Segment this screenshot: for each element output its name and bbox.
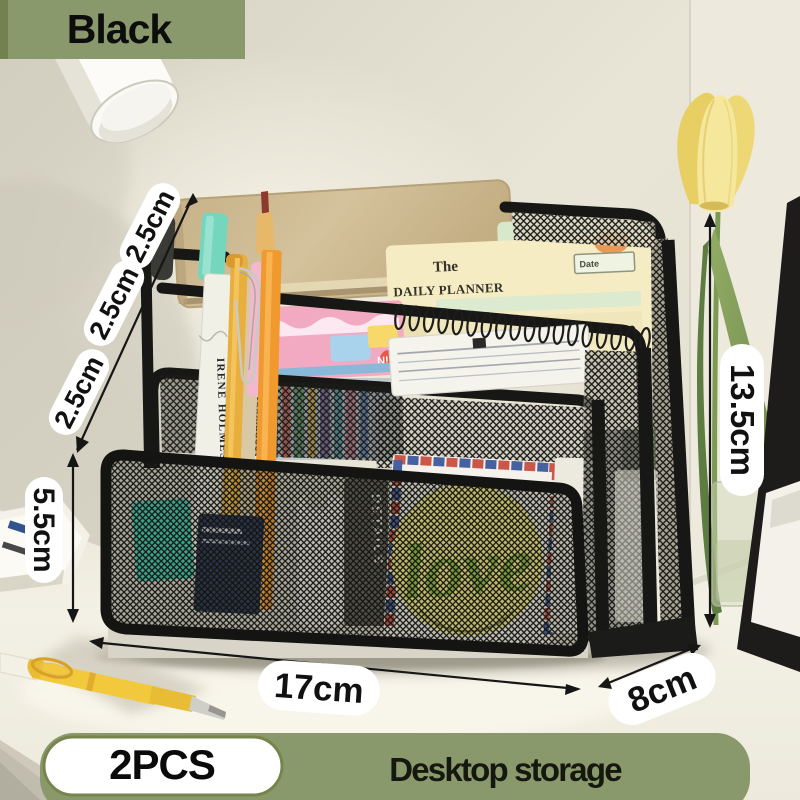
svg-text:Black: Black [67, 6, 173, 52]
svg-text:The: The [433, 259, 459, 276]
svg-text:13.5cm: 13.5cm [724, 364, 761, 476]
svg-text:5.5cm: 5.5cm [27, 487, 60, 572]
svg-text:17cm: 17cm [273, 666, 365, 711]
svg-text:Desktop storage: Desktop storage [389, 751, 622, 788]
svg-text:Date: Date [579, 259, 599, 270]
svg-text:2PCS: 2PCS [109, 741, 215, 788]
